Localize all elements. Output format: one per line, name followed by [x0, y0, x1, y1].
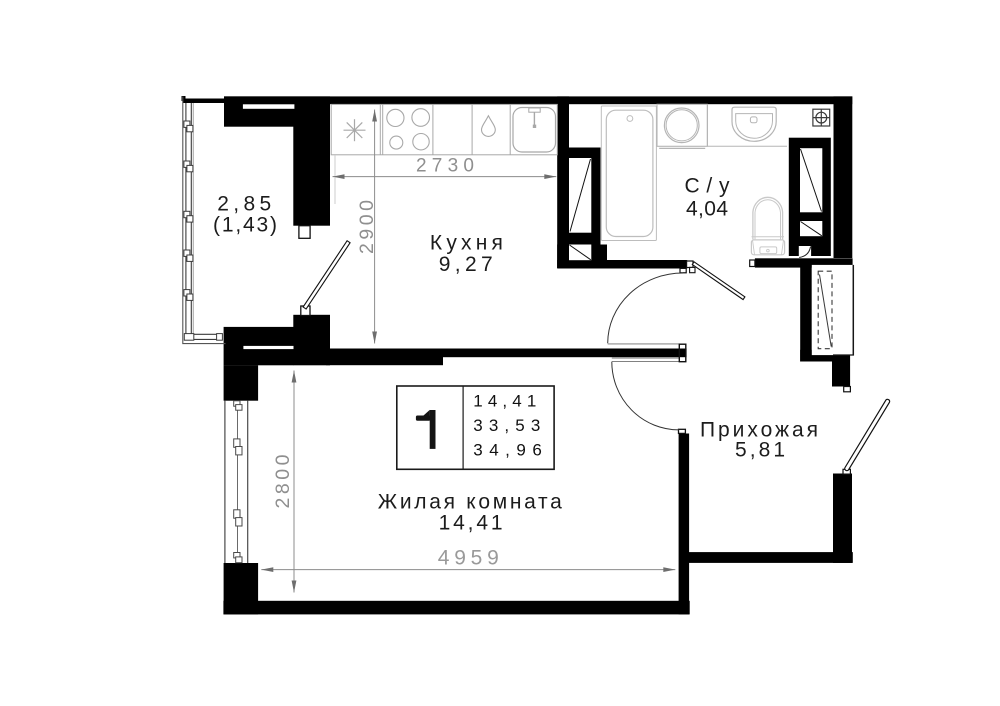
svg-text:(1,43): (1,43)	[213, 214, 277, 237]
svg-text:Жилая комната: Жилая комната	[378, 490, 562, 513]
svg-text:Кухня: Кухня	[430, 231, 503, 254]
svg-text:14,41: 14,41	[473, 391, 536, 410]
svg-text:2,85: 2,85	[217, 193, 271, 216]
svg-text:4,04: 4,04	[686, 198, 728, 221]
svg-text:14,41: 14,41	[439, 512, 503, 535]
svg-text:С/у: С/у	[685, 175, 731, 198]
svg-text:5,81: 5,81	[735, 439, 785, 462]
svg-text:9,27: 9,27	[439, 253, 493, 276]
